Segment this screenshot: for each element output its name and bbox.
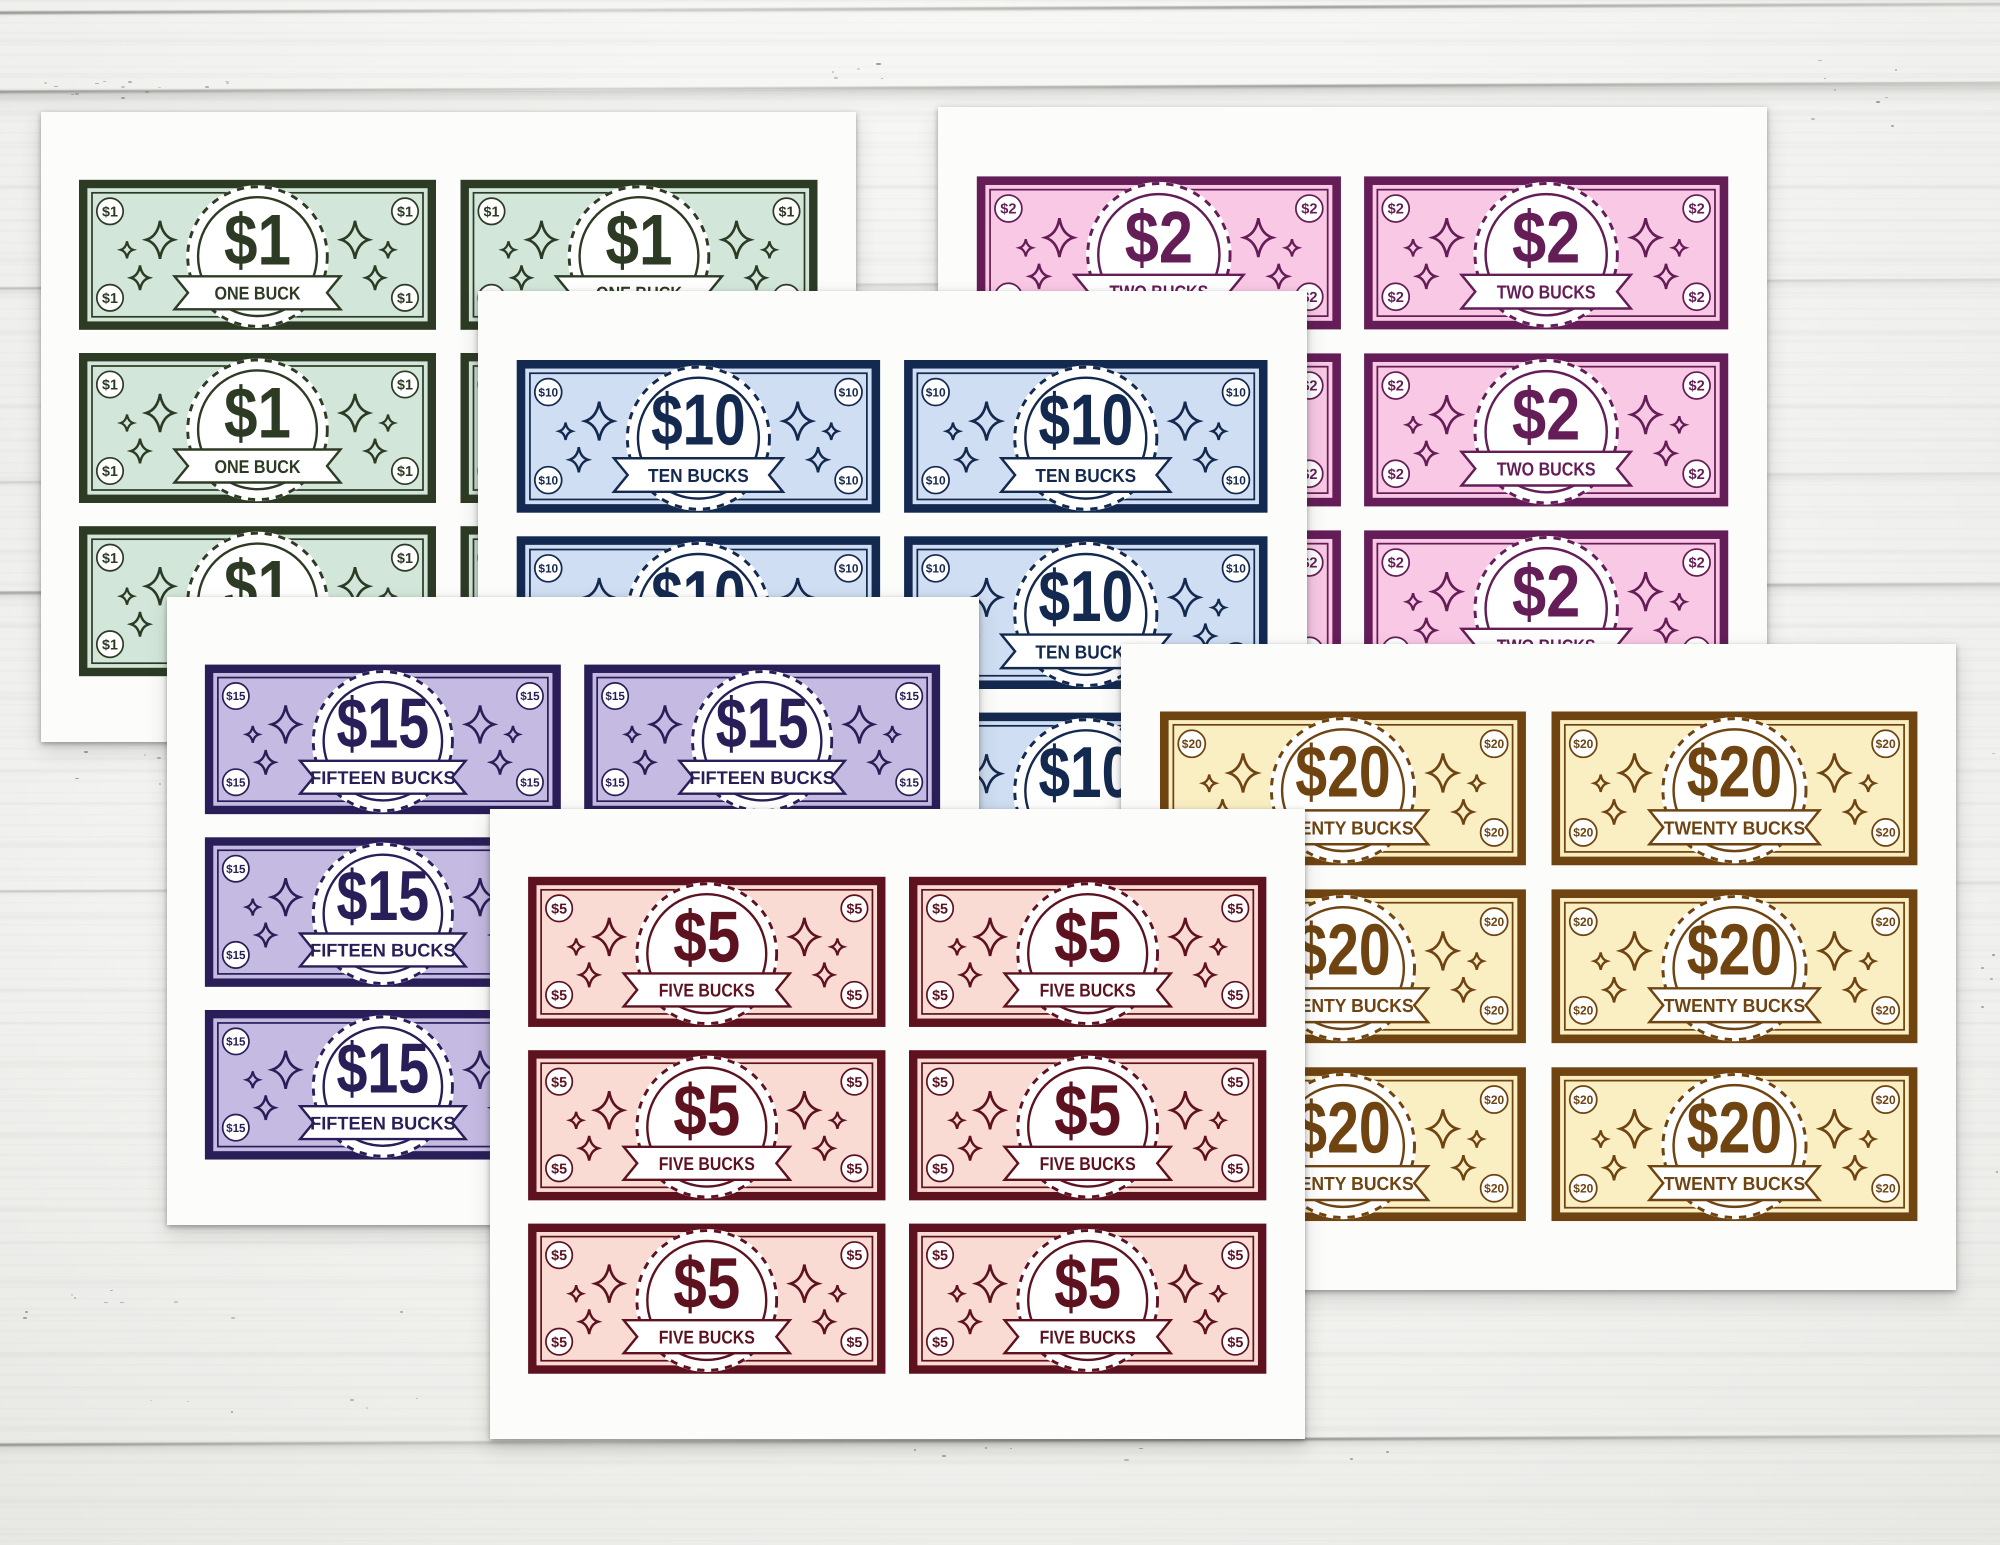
svg-text:$1: $1 [102, 377, 118, 393]
svg-text:$2: $2 [1387, 555, 1403, 571]
svg-text:$10: $10 [839, 561, 859, 575]
svg-text:$10: $10 [651, 380, 746, 460]
svg-text:$10: $10 [1039, 380, 1134, 460]
svg-text:$15: $15 [337, 685, 430, 764]
svg-text:$2: $2 [1512, 374, 1580, 456]
svg-text:TWENTY BUCKS: TWENTY BUCKS [1664, 817, 1805, 839]
svg-text:$5: $5 [1227, 1075, 1243, 1091]
svg-text:$2: $2 [1387, 467, 1403, 483]
svg-text:$20: $20 [1573, 915, 1593, 929]
svg-text:TWENTY BUCKS: TWENTY BUCKS [1664, 995, 1805, 1017]
svg-text:$2: $2 [1000, 201, 1016, 217]
svg-text:FIFTEEN BUCKS: FIFTEEN BUCKS [310, 1113, 456, 1134]
svg-text:FIVE BUCKS: FIVE BUCKS [659, 1326, 755, 1347]
svg-text:TWO BUCKS: TWO BUCKS [1496, 458, 1595, 479]
svg-text:$15: $15 [900, 689, 920, 703]
svg-text:$1: $1 [397, 377, 413, 393]
svg-text:$10: $10 [926, 561, 946, 575]
svg-text:$10: $10 [1226, 385, 1246, 399]
svg-text:$1: $1 [102, 550, 118, 566]
svg-text:$10: $10 [539, 561, 559, 575]
svg-text:$2: $2 [1688, 201, 1704, 217]
svg-text:$15: $15 [226, 948, 246, 962]
svg-text:TEN BUCKS: TEN BUCKS [648, 465, 749, 486]
svg-text:$5: $5 [673, 1071, 740, 1151]
svg-text:$20: $20 [1876, 737, 1896, 751]
svg-text:$5: $5 [847, 1075, 863, 1091]
svg-text:$20: $20 [1687, 910, 1782, 991]
svg-text:$5: $5 [847, 901, 863, 917]
svg-text:FIFTEEN BUCKS: FIFTEEN BUCKS [310, 940, 456, 961]
svg-text:$1: $1 [779, 204, 795, 220]
svg-text:FIVE BUCKS: FIVE BUCKS [659, 980, 755, 1001]
svg-text:$5: $5 [932, 1075, 948, 1091]
svg-text:FIVE BUCKS: FIVE BUCKS [1040, 1153, 1136, 1174]
svg-text:$5: $5 [551, 1161, 567, 1177]
svg-text:$1: $1 [484, 204, 500, 220]
svg-text:$20: $20 [1484, 1003, 1504, 1017]
svg-text:$20: $20 [1484, 1181, 1504, 1195]
svg-text:$10: $10 [539, 473, 559, 487]
svg-text:$2: $2 [1387, 378, 1403, 394]
svg-text:$5: $5 [551, 1248, 567, 1264]
svg-text:$2: $2 [1688, 555, 1704, 571]
svg-text:$5: $5 [1227, 1161, 1243, 1177]
svg-text:FIFTEEN BUCKS: FIFTEEN BUCKS [310, 767, 456, 788]
svg-text:$2: $2 [1688, 290, 1704, 306]
svg-text:$15: $15 [520, 689, 540, 703]
svg-text:$20: $20 [1876, 1181, 1896, 1195]
svg-text:$20: $20 [1484, 1093, 1504, 1107]
svg-text:$5: $5 [673, 1244, 740, 1324]
svg-text:$20: $20 [1295, 1088, 1390, 1169]
svg-text:$20: $20 [1573, 1003, 1593, 1017]
svg-text:$5: $5 [1054, 1244, 1121, 1324]
svg-text:$20: $20 [1876, 825, 1896, 839]
svg-text:$5: $5 [1227, 901, 1243, 917]
svg-text:$1: $1 [224, 373, 291, 453]
svg-text:$20: $20 [1687, 1088, 1782, 1169]
svg-text:$5: $5 [932, 1248, 948, 1264]
svg-text:$5: $5 [932, 1161, 948, 1177]
svg-text:$5: $5 [932, 988, 948, 1004]
svg-text:$2: $2 [1387, 290, 1403, 306]
svg-text:ONE BUCK: ONE BUCK [215, 455, 302, 476]
svg-text:FIVE BUCKS: FIVE BUCKS [1040, 1326, 1136, 1347]
svg-text:$15: $15 [605, 689, 625, 703]
svg-text:FIVE BUCKS: FIVE BUCKS [1040, 980, 1136, 1001]
svg-text:$15: $15 [337, 1030, 430, 1109]
svg-text:$20: $20 [1295, 910, 1390, 991]
svg-text:$20: $20 [1182, 737, 1202, 751]
svg-text:$10: $10 [1226, 561, 1246, 575]
svg-text:$5: $5 [932, 901, 948, 917]
svg-text:$2: $2 [1688, 467, 1704, 483]
svg-text:$10: $10 [926, 385, 946, 399]
svg-text:$5: $5 [1227, 1248, 1243, 1264]
svg-text:$15: $15 [520, 776, 540, 790]
svg-text:$1: $1 [397, 550, 413, 566]
svg-text:$5: $5 [673, 897, 740, 977]
svg-text:$1: $1 [102, 290, 118, 306]
svg-text:$20: $20 [1876, 1093, 1896, 1107]
svg-text:$10: $10 [1039, 733, 1134, 813]
svg-text:FIFTEEN BUCKS: FIFTEEN BUCKS [689, 767, 835, 788]
svg-text:$20: $20 [1484, 825, 1504, 839]
svg-text:$10: $10 [839, 473, 859, 487]
svg-text:$15: $15 [226, 1121, 246, 1135]
svg-text:$10: $10 [539, 385, 559, 399]
svg-text:$15: $15 [226, 776, 246, 790]
svg-text:$20: $20 [1876, 1003, 1896, 1017]
svg-text:$5: $5 [551, 901, 567, 917]
svg-text:$15: $15 [716, 685, 809, 764]
svg-text:$2: $2 [1688, 378, 1704, 394]
svg-text:$10: $10 [926, 473, 946, 487]
svg-text:$5: $5 [551, 1335, 567, 1351]
svg-text:$20: $20 [1687, 732, 1782, 813]
svg-text:$5: $5 [1054, 1071, 1121, 1151]
svg-text:$20: $20 [1573, 825, 1593, 839]
svg-text:$2: $2 [1512, 551, 1580, 633]
svg-text:$20: $20 [1876, 915, 1896, 929]
svg-text:$20: $20 [1484, 915, 1504, 929]
svg-text:$15: $15 [226, 862, 246, 876]
svg-text:$10: $10 [839, 385, 859, 399]
svg-text:$5: $5 [1227, 988, 1243, 1004]
svg-text:$1: $1 [397, 204, 413, 220]
svg-text:$5: $5 [847, 988, 863, 1004]
svg-text:$15: $15 [337, 857, 430, 936]
svg-text:$1: $1 [224, 200, 291, 280]
svg-text:$1: $1 [102, 464, 118, 480]
svg-text:$5: $5 [847, 1161, 863, 1177]
svg-text:$15: $15 [605, 776, 625, 790]
svg-text:$20: $20 [1484, 737, 1504, 751]
svg-text:$20: $20 [1573, 1093, 1593, 1107]
svg-text:$5: $5 [932, 1335, 948, 1351]
svg-text:$2: $2 [1387, 201, 1403, 217]
svg-text:TWENTY BUCKS: TWENTY BUCKS [1664, 1173, 1805, 1195]
svg-text:$1: $1 [606, 200, 673, 280]
svg-text:FIVE BUCKS: FIVE BUCKS [659, 1153, 755, 1174]
svg-text:$5: $5 [1227, 1335, 1243, 1351]
svg-text:$2: $2 [1301, 201, 1317, 217]
svg-text:TEN BUCKS: TEN BUCKS [1036, 465, 1137, 486]
svg-text:$5: $5 [1054, 897, 1121, 977]
svg-text:$1: $1 [102, 204, 118, 220]
svg-text:$15: $15 [226, 689, 246, 703]
svg-text:$2: $2 [1512, 197, 1580, 279]
svg-text:$1: $1 [102, 637, 118, 653]
svg-text:$15: $15 [900, 776, 920, 790]
svg-text:TWO BUCKS: TWO BUCKS [1496, 281, 1595, 302]
svg-text:$2: $2 [1124, 197, 1192, 279]
svg-text:$20: $20 [1573, 1181, 1593, 1195]
svg-text:$15: $15 [226, 1035, 246, 1049]
svg-text:$1: $1 [397, 464, 413, 480]
svg-text:$20: $20 [1573, 737, 1593, 751]
svg-text:$5: $5 [551, 1075, 567, 1091]
svg-text:$10: $10 [1039, 557, 1134, 637]
svg-text:$10: $10 [1226, 473, 1246, 487]
svg-text:$5: $5 [551, 988, 567, 1004]
svg-text:$20: $20 [1295, 732, 1390, 813]
svg-text:$1: $1 [397, 290, 413, 306]
svg-text:$5: $5 [847, 1335, 863, 1351]
svg-text:ONE BUCK: ONE BUCK [215, 282, 302, 303]
svg-text:$5: $5 [847, 1248, 863, 1264]
